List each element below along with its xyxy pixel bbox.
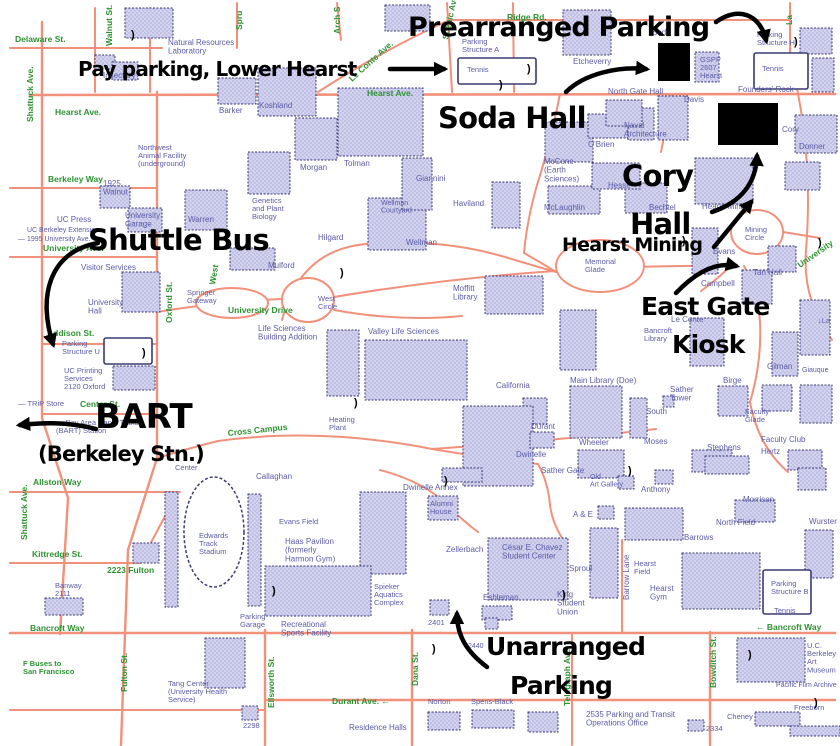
- building-label: Davis: [684, 95, 704, 104]
- building-shape: [800, 300, 830, 355]
- building-label: RecreationalSports Facility: [281, 620, 331, 638]
- building-shape: [560, 310, 596, 370]
- building-label: Moses: [644, 437, 668, 446]
- building-label: HearstField: [634, 559, 657, 576]
- building-label: Haviland: [453, 199, 484, 208]
- building-label: César E. ChavezStudent Center: [502, 543, 562, 561]
- annotation-label: Unarranged: [486, 632, 645, 661]
- building-shape: [442, 468, 482, 482]
- building-label: SpringerGateway: [187, 288, 217, 305]
- building-label: Callaghan: [256, 472, 292, 481]
- building-label: Giauque: [802, 367, 829, 374]
- gate-symbol: ): [527, 63, 531, 75]
- gate-symbol: ): [272, 585, 276, 597]
- building-label: Morgan: [300, 163, 327, 172]
- street-label: Berkeley Way: [48, 174, 103, 184]
- building-shape: [242, 706, 258, 720]
- building-label: SatherTower: [670, 385, 694, 403]
- building-label: HeatingPlant: [329, 415, 355, 432]
- building-shape: [695, 158, 753, 204]
- building-label: Stephens: [707, 443, 741, 452]
- building-label: Natural ResourcesLaboratory: [168, 38, 234, 56]
- campus-map: Delaware St.Walnut St.Shattuck Ave.SpruH…: [0, 0, 840, 746]
- building-shape: [205, 638, 245, 688]
- street-label: Shattuck Ave.: [19, 484, 29, 540]
- building-shape: [655, 470, 673, 484]
- annotation-label: Soda Hall: [438, 101, 586, 135]
- building-shape: [812, 58, 834, 92]
- building-label: Birge: [723, 376, 742, 385]
- building-label: Giannini: [416, 174, 446, 183]
- building-label: Wheeler: [579, 438, 609, 447]
- street-label: Bowditch St.: [708, 637, 718, 688]
- building-label: UniversityHall: [88, 298, 123, 316]
- gate-symbol: ): [142, 347, 146, 359]
- street-label: Hearst Ave.: [367, 88, 413, 98]
- building-shape: [360, 492, 406, 574]
- building-label: Norton: [428, 697, 451, 706]
- building-label: UC Press: [57, 215, 91, 224]
- building-shape: [248, 152, 290, 194]
- building-shape: [570, 386, 622, 438]
- gate-symbol: ): [340, 267, 344, 279]
- street-label: Durant Ave. ←: [332, 696, 390, 706]
- building-shape: [785, 162, 820, 190]
- annotation-label: East Gate: [641, 292, 770, 321]
- street-label: West: [207, 264, 220, 286]
- building-label: Tolman: [344, 159, 370, 168]
- building-shape: [800, 385, 832, 423]
- building-label: Cory: [782, 125, 799, 134]
- building-shape: [598, 506, 614, 519]
- street-label: Shattuck Ave.: [25, 66, 35, 122]
- building-shape: [218, 78, 256, 104]
- street-label: Kittredge St.: [32, 549, 83, 559]
- street-line: [790, 58, 832, 340]
- annotation-label: Parking: [510, 671, 612, 700]
- building-shape: [528, 712, 558, 732]
- annotation-label: Pay parking, Lower Hearst: [78, 57, 358, 81]
- building-label: Tan Hall: [753, 268, 782, 277]
- building-label: Etcheverry: [573, 57, 611, 66]
- building-shape: [788, 450, 822, 470]
- building-label: MoffittLibrary: [453, 284, 477, 302]
- building-shape: [755, 712, 800, 726]
- building-label: Dwinelle Annex: [403, 483, 458, 492]
- building-label: Mulford: [268, 261, 295, 270]
- building-label: O'Brien: [588, 140, 614, 149]
- campus-map-svg: Delaware St.Walnut St.Shattuck Ave.SpruH…: [0, 0, 840, 746]
- building-shape: [492, 182, 520, 228]
- street-label: Arch S: [332, 6, 342, 34]
- building-label: Residence Halls: [349, 723, 407, 732]
- building-label: Visitor Services: [81, 263, 136, 272]
- building-label: SpiekerAquaticsComplex: [374, 582, 404, 607]
- building-label: Banway2111: [55, 581, 82, 598]
- street-label: Walnut St.: [104, 5, 114, 46]
- building-label: ParkingGarage: [240, 612, 265, 629]
- building-label: ↓La: [818, 316, 831, 325]
- building-label: NorthwestAnimal Facility(underground): [138, 143, 187, 168]
- annotation-label: Shuttle Bus: [88, 223, 269, 257]
- building-label: Wurster: [809, 517, 837, 526]
- building-label: Tennis: [774, 606, 796, 615]
- soda-hall-highlight: [658, 43, 690, 81]
- building-shape: [625, 508, 683, 540]
- gate-symbol: ): [444, 475, 448, 487]
- building-label: BancroftLibrary: [644, 326, 673, 343]
- building-label: WestCircle: [318, 294, 337, 311]
- building-label: Tennis: [467, 65, 489, 74]
- building-label: Barrows: [684, 533, 713, 542]
- building-label: MiningCircle: [745, 225, 767, 242]
- building-label: Campbell: [701, 279, 735, 288]
- building-label: Freeborn: [794, 703, 824, 712]
- building-shape: [485, 618, 498, 629]
- building-label: Hilgard: [318, 233, 343, 242]
- unarranged-parking-arrow: [457, 614, 487, 667]
- street-label: La: [784, 15, 794, 25]
- building-label: Durant: [531, 422, 556, 431]
- building-shape: [485, 276, 543, 314]
- street-label: 2223 Fulton: [107, 565, 154, 575]
- building-shape: [248, 494, 261, 606]
- building-shape: [718, 386, 748, 416]
- annotation-label: BART: [95, 397, 193, 437]
- building-label: Koshland: [259, 101, 292, 110]
- street-label: Dana St.: [410, 652, 420, 686]
- building-label: McLaughlin: [544, 203, 585, 212]
- building-label: GSPP2607Hearst: [700, 55, 723, 80]
- building-label: Cheney: [727, 712, 753, 721]
- street-label: Ellsworth St.: [266, 657, 276, 708]
- building-label: North Field: [716, 518, 755, 527]
- building-label: U.C.BerkeleyArtMuseum: [807, 641, 836, 674]
- annotation-label: Cory: [622, 159, 694, 193]
- building-shape: [472, 710, 514, 728]
- building-label: Main Library (Doe): [570, 376, 637, 385]
- street-line: [550, 505, 562, 538]
- building-shape: [338, 88, 423, 156]
- building-label: 2298: [243, 721, 260, 730]
- street-label: Fulton St.: [119, 653, 129, 692]
- building-label: FacultyGlade: [745, 407, 769, 424]
- gate-symbol: ): [562, 589, 566, 601]
- building-shape: [295, 118, 337, 160]
- building-shape: [630, 398, 647, 438]
- building-shape: [790, 726, 840, 736]
- building-label: Tennis: [762, 64, 784, 73]
- street-label: Oxford St.: [164, 282, 174, 323]
- building-shape: [590, 528, 618, 598]
- building-shape: [688, 720, 704, 731]
- building-label: Eshleman: [483, 593, 519, 602]
- building-label: Valley Life Sciences: [368, 327, 439, 336]
- street-line: [30, 94, 835, 95]
- building-label: Morrison: [743, 495, 774, 504]
- building-shape: [430, 600, 449, 615]
- building-label: Faculty Club: [761, 435, 806, 444]
- building-label: Life SciencesBuilding Addition: [258, 324, 317, 342]
- building-label: Wellman: [406, 238, 437, 247]
- building-shape: [682, 553, 760, 609]
- gate-symbol: ): [818, 237, 822, 249]
- street-label: Allston Way: [33, 477, 82, 487]
- building-shape: [798, 468, 826, 490]
- gate-symbol: ): [432, 643, 436, 655]
- building-label: Hertz: [761, 447, 780, 456]
- building-label: ParkingStructure U: [62, 339, 100, 356]
- building-label: California: [496, 381, 530, 390]
- building-shape: [113, 366, 155, 390]
- street-label: Addison St.: [47, 328, 94, 338]
- building-label: Spens-Black: [471, 697, 513, 706]
- building-label: South: [646, 407, 667, 416]
- building-label: Barker: [219, 106, 243, 115]
- building-label: Anthony: [641, 485, 670, 494]
- building-label: AlumniHouse: [430, 499, 453, 516]
- building-shape: [705, 456, 749, 474]
- gate-symbol: ): [748, 649, 752, 661]
- building-label: Barrow Lane: [622, 554, 631, 600]
- building-label: Gilman: [767, 362, 792, 371]
- building-label: — TRiP Store: [18, 399, 64, 408]
- building-label: Pacific Film Archive: [776, 682, 837, 689]
- building-shape: [133, 543, 159, 563]
- gate-symbol: ): [354, 397, 358, 409]
- annotation-label: (Berkeley Stn.): [38, 442, 204, 466]
- building-shape: [165, 492, 178, 607]
- building-label: A & E: [573, 510, 593, 519]
- building-shape: [327, 330, 359, 396]
- cory-hall-highlight: [718, 103, 778, 145]
- building-label: Founders' Rock: [738, 85, 795, 94]
- annotation-label: Hearst Mining: [562, 234, 702, 256]
- building-shape: [530, 432, 554, 448]
- building-label: 2535 Parking and TransitOperations Offic…: [586, 710, 676, 728]
- street-label: University: [795, 238, 835, 270]
- building-shape: [578, 450, 624, 478]
- building-shape: [122, 272, 160, 312]
- building-label: Evans: [713, 247, 735, 256]
- building-label: Sproul: [569, 564, 592, 573]
- annotation-label: Kiosk: [672, 330, 747, 359]
- street-label: F Buses toSan Francisco: [23, 659, 75, 676]
- street-line: [783, 232, 820, 238]
- building-label: Dwinelle: [516, 450, 547, 459]
- gate-symbol: ): [814, 697, 818, 709]
- street-label: Bancroft Way: [30, 623, 85, 633]
- building-label: HearstGym: [650, 584, 674, 602]
- building-label: Donner: [799, 142, 826, 151]
- street-line: [524, 253, 556, 272]
- building-shape: [800, 28, 832, 54]
- building-label: 2401: [428, 618, 445, 627]
- building-shape: [365, 340, 467, 400]
- building-shape: [45, 598, 83, 615]
- street-line: [334, 310, 462, 318]
- building-label: 1925Walnut: [103, 179, 128, 197]
- building-label: Haas Pavilion(formerlyHarmon Gym): [285, 537, 336, 563]
- building-label: WellmanCourtyard: [381, 200, 412, 215]
- building-label: 2334: [706, 724, 723, 733]
- building-label: Zellerbach: [446, 545, 483, 554]
- building-label: Evans Field: [279, 517, 318, 526]
- building-label: North Gate Hall: [608, 87, 663, 96]
- building-shape: [428, 712, 460, 730]
- annotation-label: Prearranged Parking: [408, 12, 709, 43]
- street-label: Spru: [234, 11, 244, 30]
- gate-symbol: ): [794, 36, 798, 48]
- gate-symbol: ): [499, 79, 503, 91]
- street-label: ← Bancroft Way: [756, 622, 822, 632]
- building-label: Sather Gate: [541, 466, 585, 475]
- street-label: University Drive: [228, 305, 293, 315]
- street-label: Delaware St.: [15, 34, 66, 44]
- gate-symbol: ): [131, 29, 135, 41]
- building-label: Geneticsand PlantBiology: [252, 196, 285, 221]
- street-label: Hearst Ave.: [55, 107, 101, 117]
- building-shape: [265, 566, 371, 616]
- building-label: UC PrintingServices2120 Oxford: [64, 366, 105, 391]
- gate-symbol: ): [628, 465, 632, 477]
- building-label: — 1995 University Ave.: [18, 236, 91, 243]
